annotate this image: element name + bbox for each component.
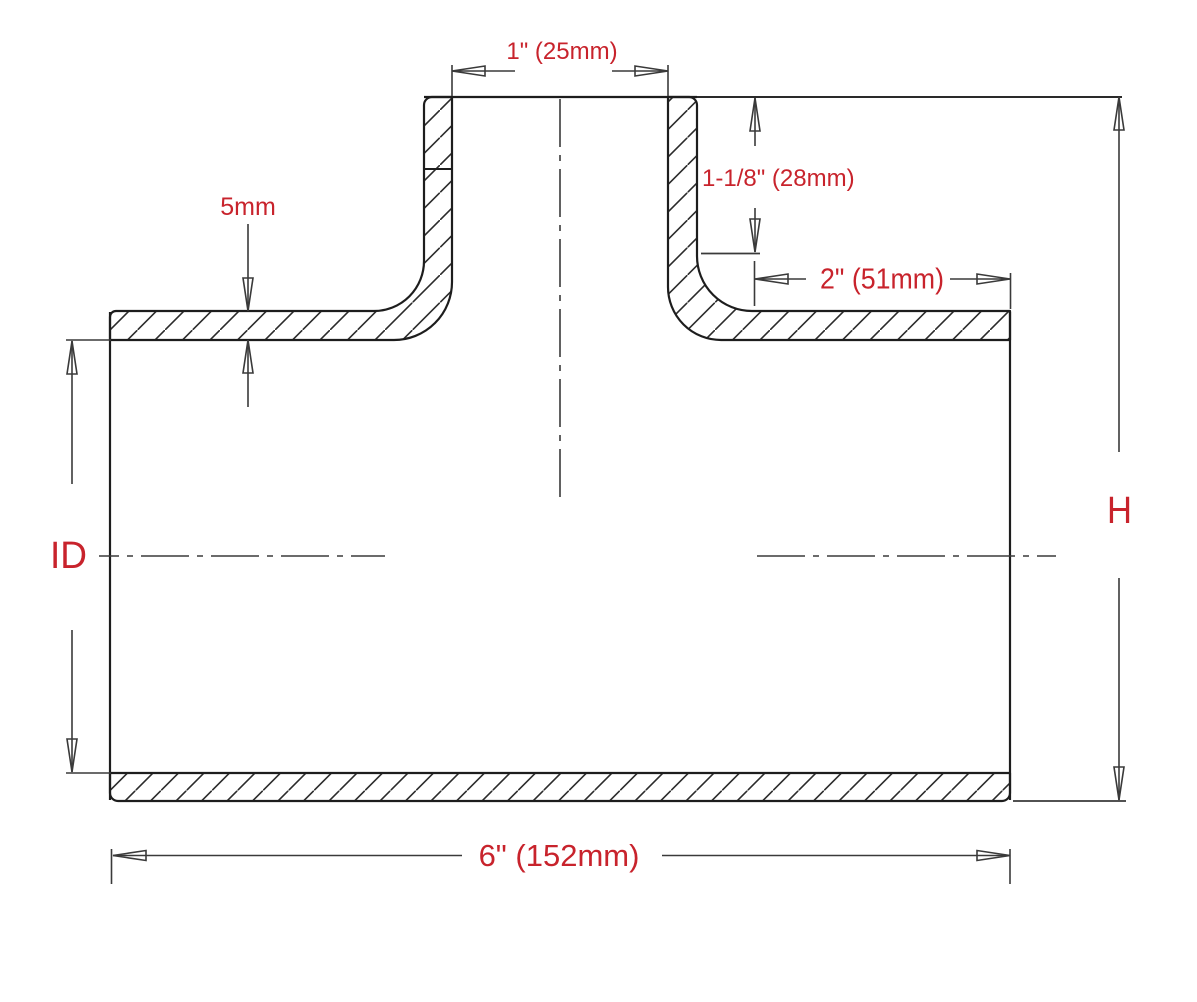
svg-text:5mm: 5mm: [220, 193, 276, 221]
svg-text:1" (25mm): 1" (25mm): [506, 38, 617, 65]
svg-text:ID: ID: [50, 535, 87, 577]
svg-text:6" (152mm): 6" (152mm): [479, 838, 640, 873]
svg-text:2" (51mm): 2" (51mm): [820, 264, 944, 296]
svg-text:H: H: [1107, 490, 1132, 532]
svg-text:1-1/8" (28mm): 1-1/8" (28mm): [702, 165, 855, 192]
